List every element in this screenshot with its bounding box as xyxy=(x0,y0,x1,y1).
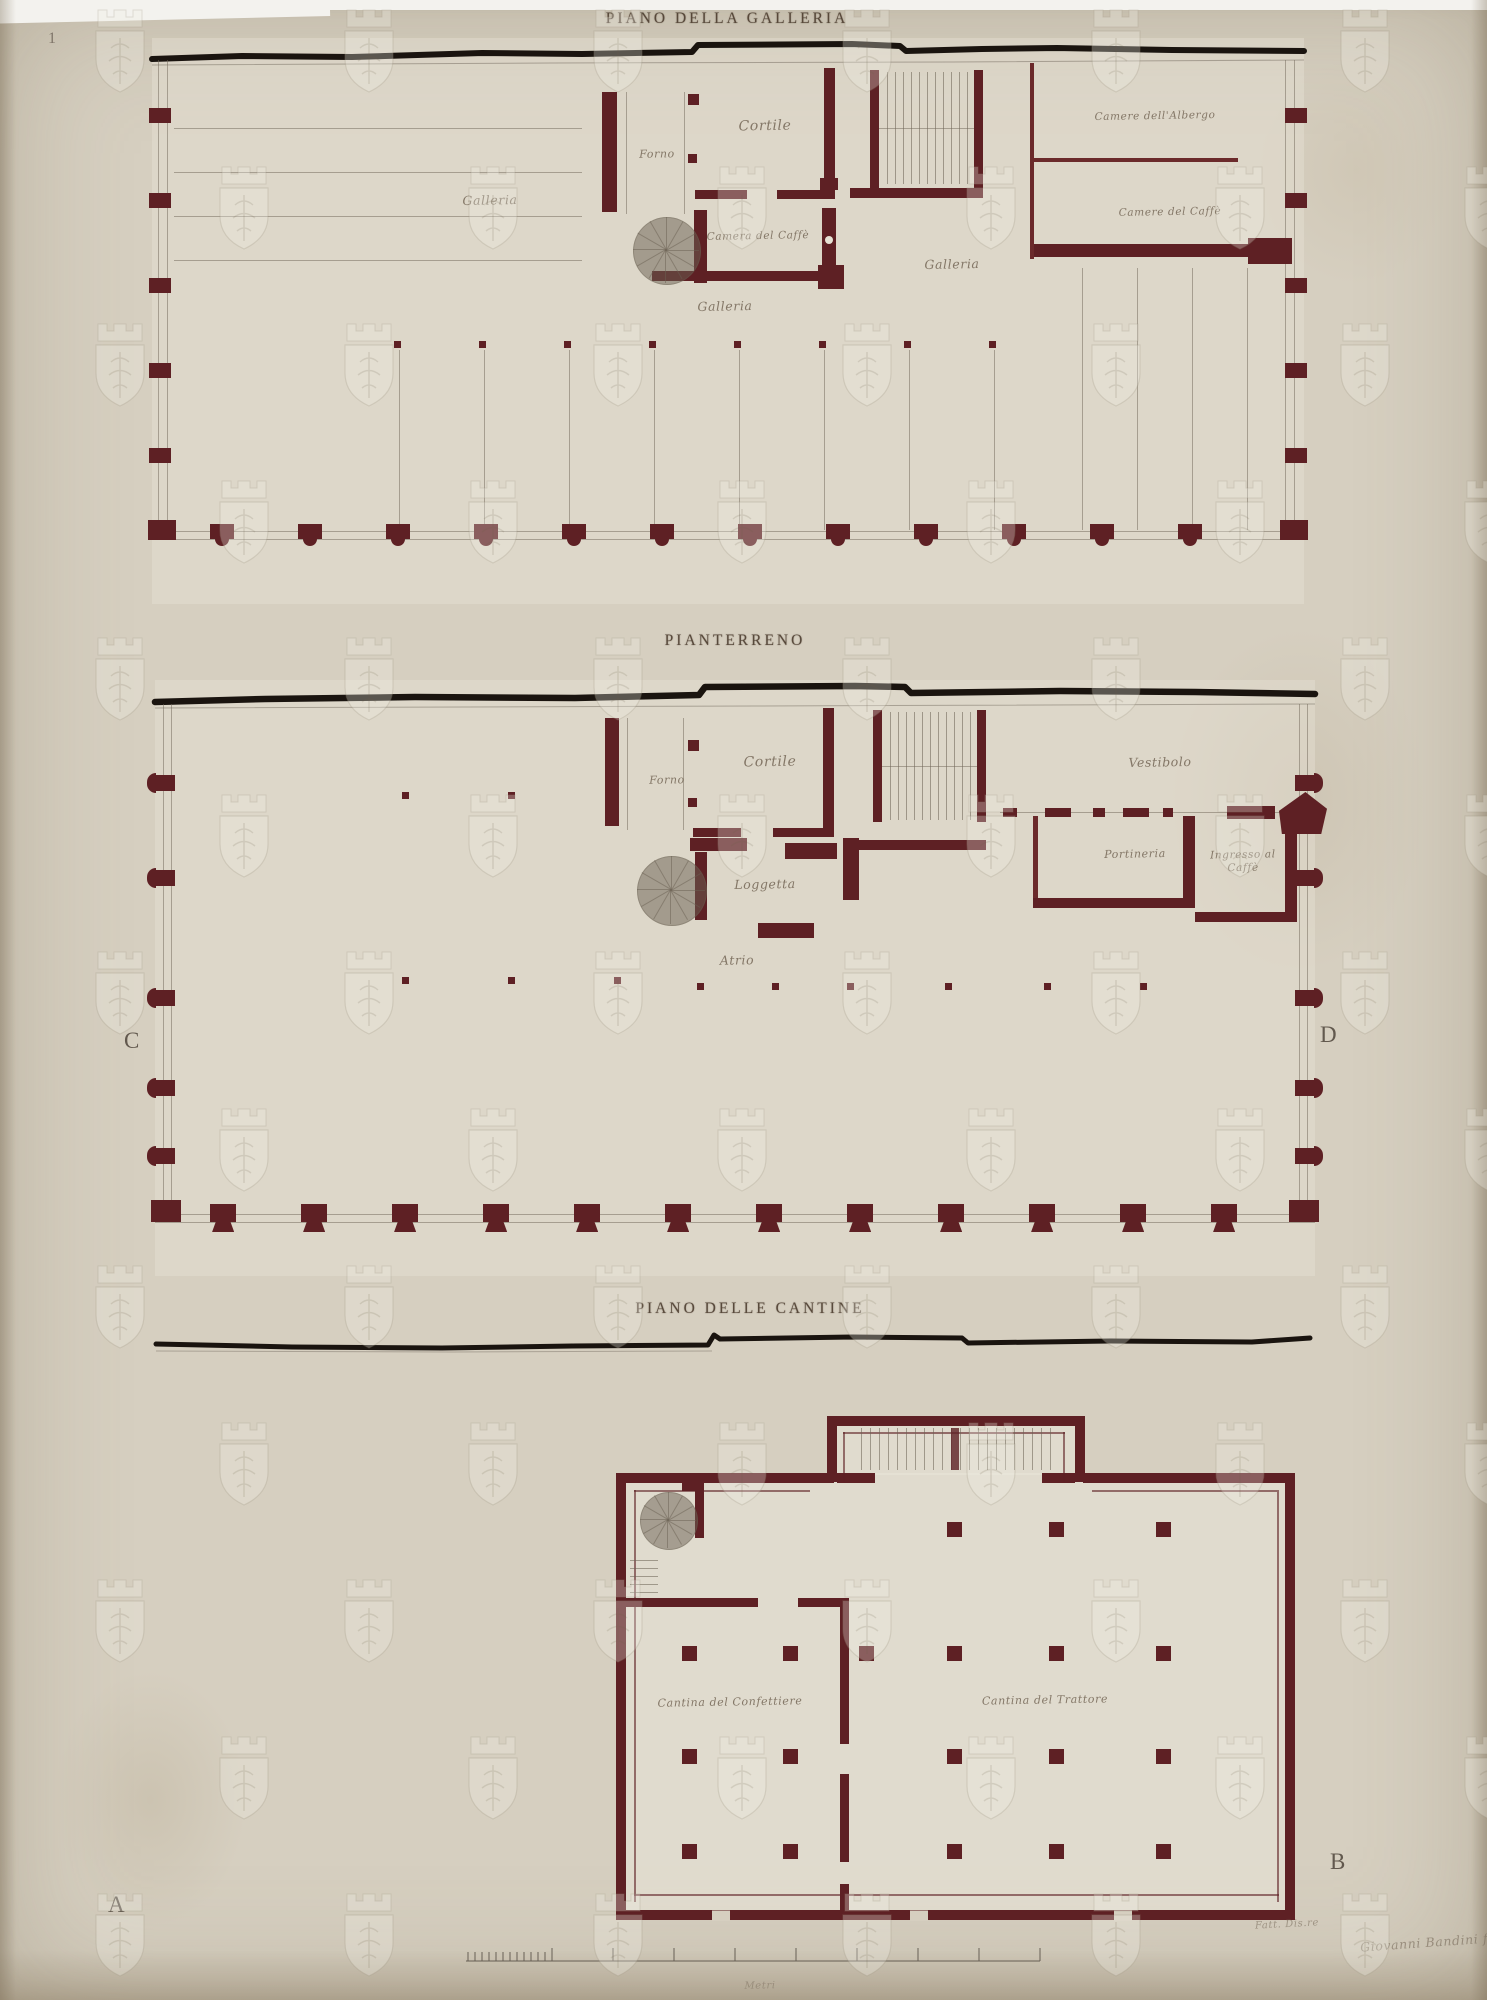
watermark-shield-icon xyxy=(1457,1107,1487,1203)
watermark-shield-icon xyxy=(1457,793,1487,889)
watermark-shield-icon xyxy=(88,950,152,1046)
room-label-ingresso-caffe: Ingresso al Caffè xyxy=(1197,848,1289,876)
plan2-exterior-wall xyxy=(155,680,1315,710)
room-label-camera-caffe: Camera del Caffè xyxy=(707,229,810,243)
room-label-camere-albergo: Camere dell'Albergo xyxy=(1094,109,1215,123)
watermark-shield-icon xyxy=(1333,636,1397,732)
room-label-cortile: Cortile xyxy=(743,754,796,771)
plan3-section-line xyxy=(152,1326,1315,1360)
paper-corner-top-right xyxy=(1150,0,1487,8)
signature-note: Fatt. Dis.re xyxy=(1255,1917,1320,1931)
room-label-portineria: Portineria xyxy=(1104,847,1166,861)
stair-steps xyxy=(630,1552,658,1596)
watermark-shield-icon xyxy=(1457,479,1487,575)
watermark-shield-icon xyxy=(88,1264,152,1360)
scanned-drawing-sheet: PIANO DELLA GALLERIA 1 xyxy=(0,0,1487,2000)
room-label-cortile: Cortile xyxy=(738,118,791,135)
section-marker-d: D xyxy=(1320,1022,1337,1048)
watermark-shield-icon xyxy=(88,8,152,104)
watermark-shield-icon xyxy=(1457,1735,1487,1831)
plate-number: 1 xyxy=(48,30,56,48)
room-label-atrio: Atrio xyxy=(720,952,755,968)
plan2-title: PIANTERRENO xyxy=(665,632,806,650)
room-label-galleria-center: Galleria xyxy=(697,298,752,314)
scale-bar xyxy=(466,1946,1046,1982)
room-label-galleria-right: Galleria xyxy=(924,256,979,272)
section-marker-b: B xyxy=(1330,1849,1345,1875)
paper-right-edge xyxy=(1471,0,1487,2000)
room-label-camere-caffe: Camere del Caffè xyxy=(1119,205,1222,219)
watermark-shield-icon xyxy=(1333,950,1397,1046)
room-label-forno: Forno xyxy=(649,773,685,787)
plan1-drawing-galleria: Galleria Forno Cortile Camera del Caffè … xyxy=(152,38,1304,604)
signature-name: Giovanni Bandini f. xyxy=(1360,1930,1487,1954)
room-label-vestibolo: Vestibolo xyxy=(1128,754,1191,770)
watermark-shield-icon xyxy=(88,1578,152,1674)
plan1-title: PIANO DELLA GALLERIA xyxy=(606,10,849,28)
room-label-cantina-confettiere: Cantina del Confettiere xyxy=(657,1694,802,1710)
room-label-loggetta: Loggetta xyxy=(734,876,796,892)
room-label-cantina-trattore: Cantina del Trattore xyxy=(982,1692,1108,1707)
room-label-forno: Forno xyxy=(639,147,675,161)
watermark-shield-icon xyxy=(1333,1578,1397,1674)
watermark-shield-icon xyxy=(88,322,152,418)
room-label-galleria-left: Galleria xyxy=(462,192,517,208)
section-marker-c: C xyxy=(124,1028,139,1054)
watermark-shield-icon xyxy=(1457,1421,1487,1517)
watermark-shield-icon xyxy=(1333,8,1397,104)
plan3-title: PIANO DELLE CANTINE xyxy=(635,1300,864,1318)
plan2-drawing-pianterreno: Forno Cortile Loggetta Atrio Vestibolo P… xyxy=(155,680,1315,1276)
section-marker-a: A xyxy=(108,1892,125,1918)
plan1-exterior-wall xyxy=(152,38,1304,68)
paper-left-edge xyxy=(0,0,16,2000)
watermark-shield-icon xyxy=(1333,322,1397,418)
watermark-shield-icon xyxy=(88,636,152,732)
signature-block: Fatt. Dis.re Giovanni Bandini f. xyxy=(1225,1905,1485,1955)
watermark-shield-icon xyxy=(1333,1264,1397,1360)
scale-unit-label: Metri xyxy=(744,1980,775,1992)
plan3-drawing-cantine: Cantina del Confettiere Cantina del Trat… xyxy=(152,1322,1315,1994)
watermark-shield-icon xyxy=(1457,165,1487,261)
